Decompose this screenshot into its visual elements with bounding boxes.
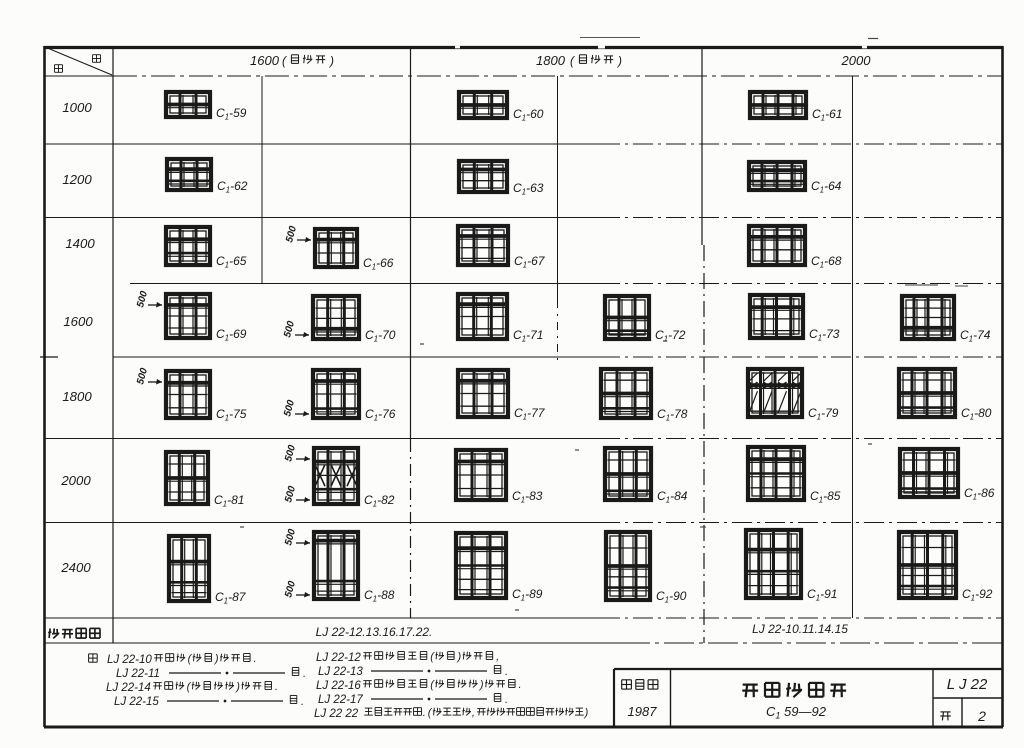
svg-text:C1-71: C1-71	[513, 328, 543, 344]
svg-text:C1-63: C1-63	[513, 181, 544, 197]
svg-text:2000: 2000	[841, 53, 872, 68]
svg-text:2000: 2000	[60, 473, 91, 488]
svg-text:1600: 1600	[250, 53, 280, 68]
svg-text:LJ 22-10.11.14.15: LJ 22-10.11.14.15	[752, 622, 848, 636]
svg-text:.: .	[275, 681, 278, 693]
svg-text:C1-70: C1-70	[365, 328, 396, 344]
svg-text:C1-80: C1-80	[961, 406, 992, 422]
svg-text:LJ 22-14: LJ 22-14	[106, 682, 151, 694]
svg-text:C1-60: C1-60	[513, 107, 544, 123]
svg-text:1400: 1400	[65, 236, 95, 251]
svg-text:C1-68: C1-68	[811, 254, 842, 270]
svg-text:C1-84: C1-84	[657, 489, 688, 505]
svg-text:C1-79: C1-79	[808, 406, 839, 422]
svg-text:C1-89: C1-89	[512, 587, 543, 603]
svg-text:C1-81: C1-81	[214, 493, 244, 509]
svg-text:C1-88: C1-88	[364, 588, 395, 604]
svg-text:C1-69: C1-69	[216, 327, 247, 343]
svg-text:LJ 22-12.13.16.17.22.: LJ 22-12.13.16.17.22.	[316, 625, 433, 639]
svg-text:C1-67: C1-67	[514, 254, 546, 270]
svg-text:L J 22: L J 22	[947, 676, 988, 693]
svg-text:C1-90: C1-90	[656, 589, 687, 605]
svg-text:.: .	[505, 666, 508, 678]
svg-text:.: .	[303, 668, 306, 680]
svg-text:LJ 22-13: LJ 22-13	[318, 666, 363, 678]
svg-text:C1-65: C1-65	[216, 254, 247, 270]
svg-text:C1-66: C1-66	[363, 256, 394, 272]
svg-text:C1-82: C1-82	[364, 493, 395, 509]
svg-text:C1-86: C1-86	[964, 486, 995, 502]
svg-text:C1-77: C1-77	[514, 406, 546, 422]
svg-text:C1-83: C1-83	[512, 489, 543, 505]
svg-text:C1-64: C1-64	[811, 179, 842, 195]
svg-text:1987: 1987	[628, 704, 658, 719]
svg-text:.: .	[505, 694, 508, 706]
svg-text:C1-74: C1-74	[960, 328, 991, 344]
svg-text:LJ 22 22: LJ 22 22	[314, 708, 359, 720]
svg-text:LJ 22-16: LJ 22-16	[316, 680, 361, 692]
svg-text:2: 2	[977, 708, 986, 724]
svg-text:LJ 22-12: LJ 22-12	[316, 652, 361, 664]
svg-text:.: .	[301, 696, 304, 708]
svg-text:C1-59: C1-59	[216, 106, 247, 122]
svg-text:LJ 22-10: LJ 22-10	[107, 654, 152, 666]
svg-text:C1 59—92: C1 59—92	[766, 704, 827, 721]
svg-text:.: .	[519, 679, 522, 691]
svg-text:C1-91: C1-91	[807, 587, 837, 603]
svg-text:1000: 1000	[62, 100, 92, 115]
svg-text:C1-85: C1-85	[810, 489, 841, 505]
svg-text:C1-78: C1-78	[657, 407, 688, 423]
svg-text:C1-72: C1-72	[655, 328, 686, 344]
svg-text:2400: 2400	[60, 560, 91, 575]
svg-text:C1-73: C1-73	[809, 327, 840, 343]
svg-text:C1-92: C1-92	[962, 587, 993, 603]
svg-text:,: ,	[496, 651, 499, 663]
svg-text:.: .	[254, 653, 257, 665]
svg-text:LJ 22-11: LJ 22-11	[116, 668, 160, 680]
svg-text:C1-62: C1-62	[217, 179, 248, 195]
svg-text:C1-75: C1-75	[216, 407, 247, 423]
svg-text:LJ 22-15: LJ 22-15	[114, 696, 159, 708]
svg-text:C1-87: C1-87	[215, 590, 247, 606]
svg-text:C1-76: C1-76	[365, 407, 396, 423]
svg-text:C1-61: C1-61	[812, 107, 842, 123]
svg-text:1600: 1600	[63, 314, 93, 329]
svg-text:1200: 1200	[62, 172, 92, 187]
svg-text:,: ,	[472, 707, 475, 719]
svg-text:.: .	[423, 707, 426, 719]
svg-text:LJ 22-17: LJ 22-17	[318, 694, 363, 706]
svg-text:1800: 1800	[62, 389, 92, 404]
svg-text:1800: 1800	[536, 53, 566, 68]
